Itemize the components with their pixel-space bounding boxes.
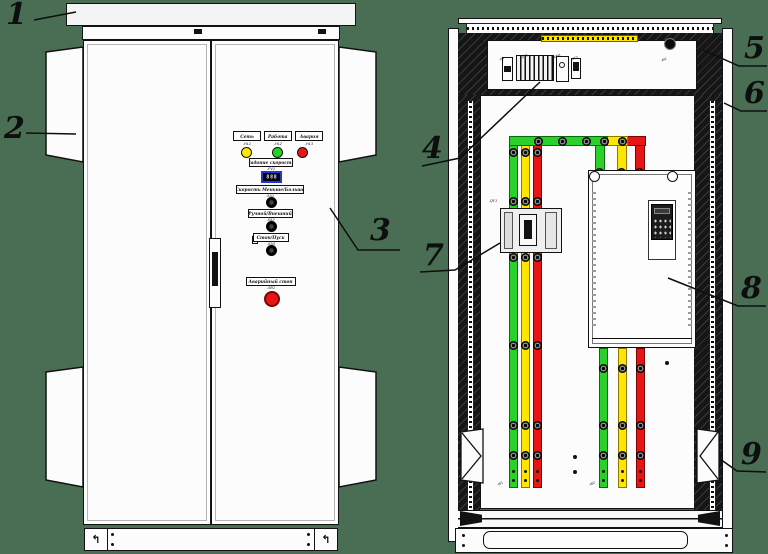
corner-gusset-left	[461, 429, 483, 483]
callout-4: 4	[422, 134, 443, 164]
leader-2	[26, 133, 76, 134]
callout-leader-lines	[0, 0, 768, 554]
callout-2: 2	[4, 114, 25, 144]
callout-9: 9	[741, 440, 762, 470]
callout-6: 6	[744, 79, 765, 109]
callout-8: 8	[741, 274, 762, 304]
technical-drawing-canvas: ↰ ↰ Сеть Работа Авария -HL1 -HL2 -HL3 За…	[0, 0, 768, 554]
leader-1	[34, 12, 76, 20]
callout-3: 3	[370, 216, 391, 246]
callout-1: 1	[6, 0, 27, 30]
callout-5: 5	[744, 34, 765, 64]
callout-7: 7	[423, 241, 444, 271]
